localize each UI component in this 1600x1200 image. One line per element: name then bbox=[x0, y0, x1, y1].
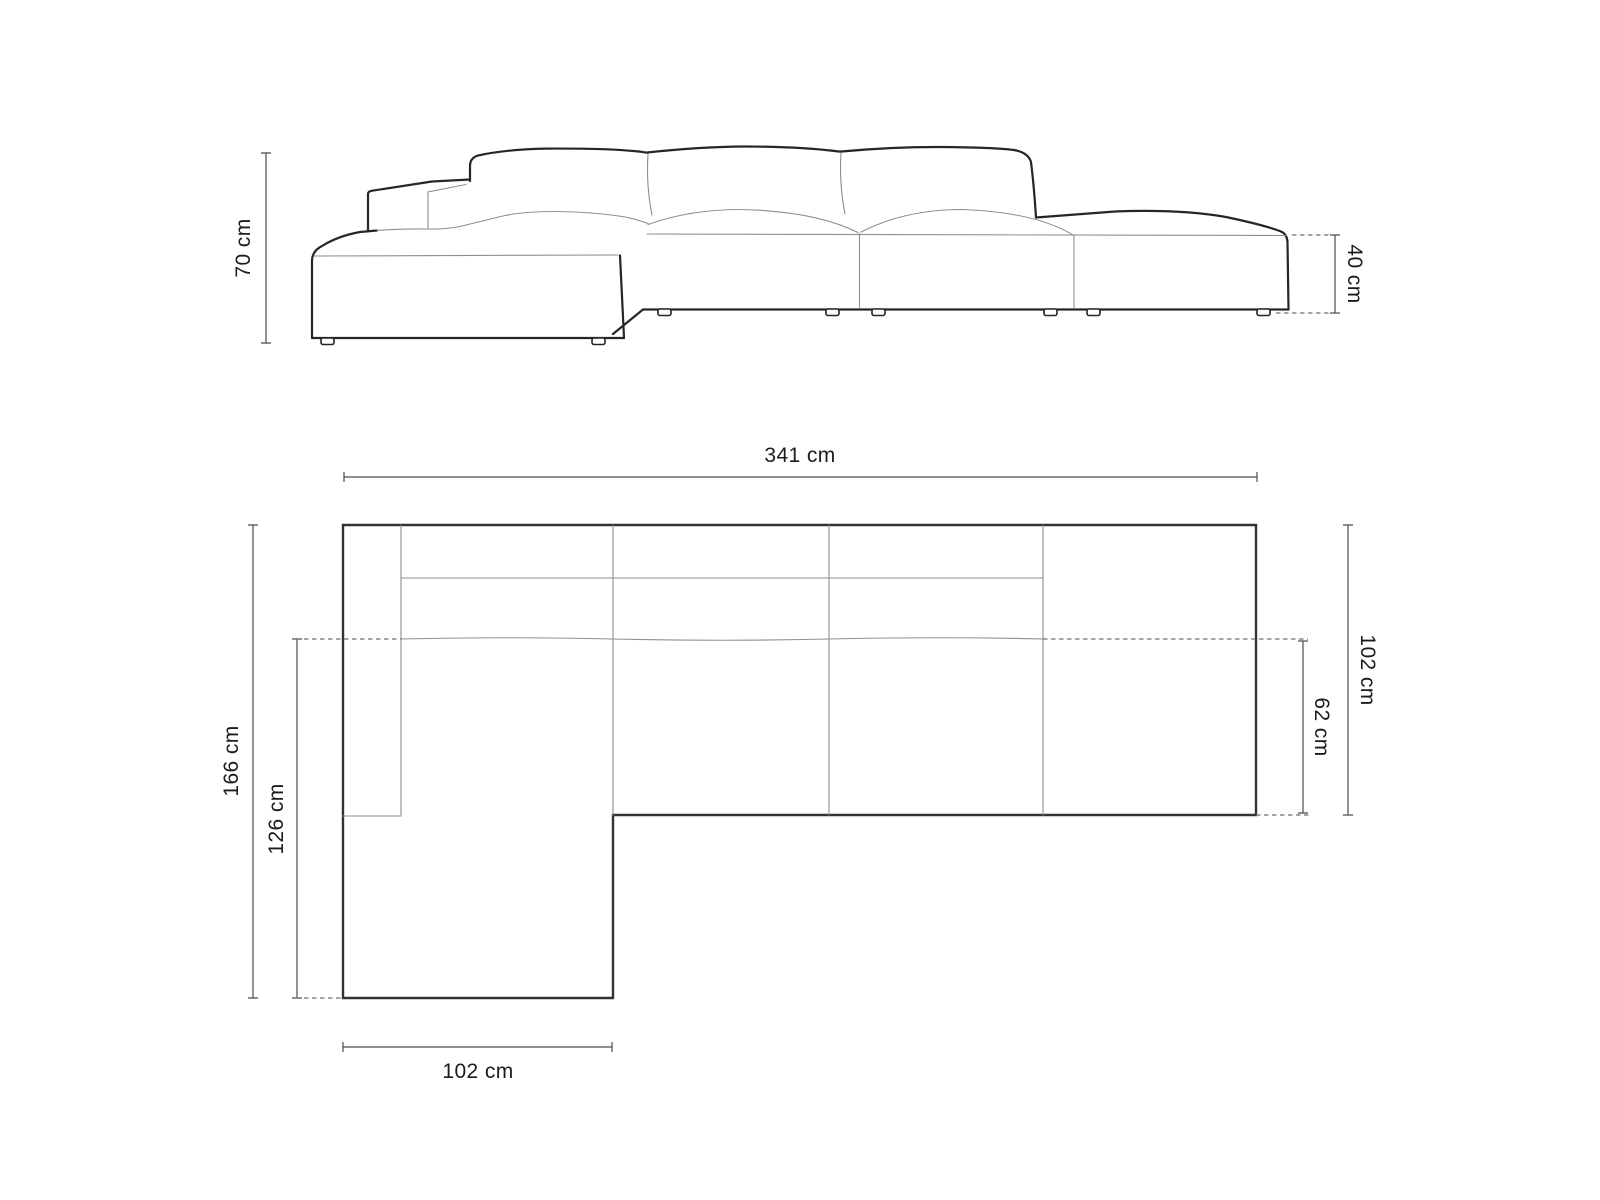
backrest-seam-1 bbox=[648, 154, 653, 215]
base-top-line bbox=[647, 234, 1286, 236]
height-dimension-line bbox=[261, 153, 271, 343]
chaise-cushion-curve bbox=[377, 212, 648, 231]
plan-view-drawing bbox=[248, 472, 1353, 1052]
seat-height-dimension-line bbox=[1330, 235, 1340, 313]
side-seat-height-label: 40 cm bbox=[1342, 244, 1366, 303]
plan-seat-depth-label: 62 cm bbox=[1309, 697, 1333, 756]
chaise-outline bbox=[312, 231, 624, 339]
seat-cushion-1-curve bbox=[648, 210, 858, 233]
backrest-silhouette bbox=[470, 147, 1036, 218]
chaise-front-top-edge bbox=[314, 255, 618, 256]
seat-cushion-2-curve bbox=[861, 210, 1073, 236]
seat-depth-dimension-line bbox=[1298, 641, 1308, 813]
sofa-legs bbox=[321, 309, 1270, 345]
plan-body-depth-label: 102 cm bbox=[1355, 634, 1379, 705]
sofa-dimension-drawing bbox=[0, 0, 1600, 1200]
plan-total-width-label: 341 cm bbox=[764, 444, 835, 468]
chaise-depth-dimension-line bbox=[292, 639, 302, 998]
plan-armrest-line bbox=[343, 525, 401, 816]
plan-total-depth-label: 166 cm bbox=[220, 725, 244, 796]
chaise-width-dimension-line bbox=[343, 1042, 612, 1052]
side-height-label: 70 cm bbox=[232, 218, 256, 277]
armrest-edges bbox=[428, 185, 466, 229]
plan-seat-front-line bbox=[401, 638, 1043, 641]
sofa-dimension-diagram: 70 cm 40 cm 341 cm 166 cm 126 cm 102 cm … bbox=[0, 0, 1600, 1200]
body-left-slant-edge bbox=[613, 310, 643, 335]
total-depth-dimension-line bbox=[248, 525, 258, 998]
plan-chaise-width-label: 102 cm bbox=[442, 1060, 513, 1084]
total-width-dimension-line bbox=[344, 472, 1257, 482]
backrest-seam-2 bbox=[841, 153, 846, 214]
body-depth-dimension-line bbox=[1343, 525, 1353, 815]
plan-chaise-depth-label: 126 cm bbox=[265, 783, 289, 854]
plan-dimension-lines bbox=[248, 472, 1353, 1052]
side-view-dimension-lines bbox=[261, 153, 1340, 343]
side-view-drawing bbox=[261, 147, 1340, 345]
plan-outline bbox=[343, 525, 1256, 998]
